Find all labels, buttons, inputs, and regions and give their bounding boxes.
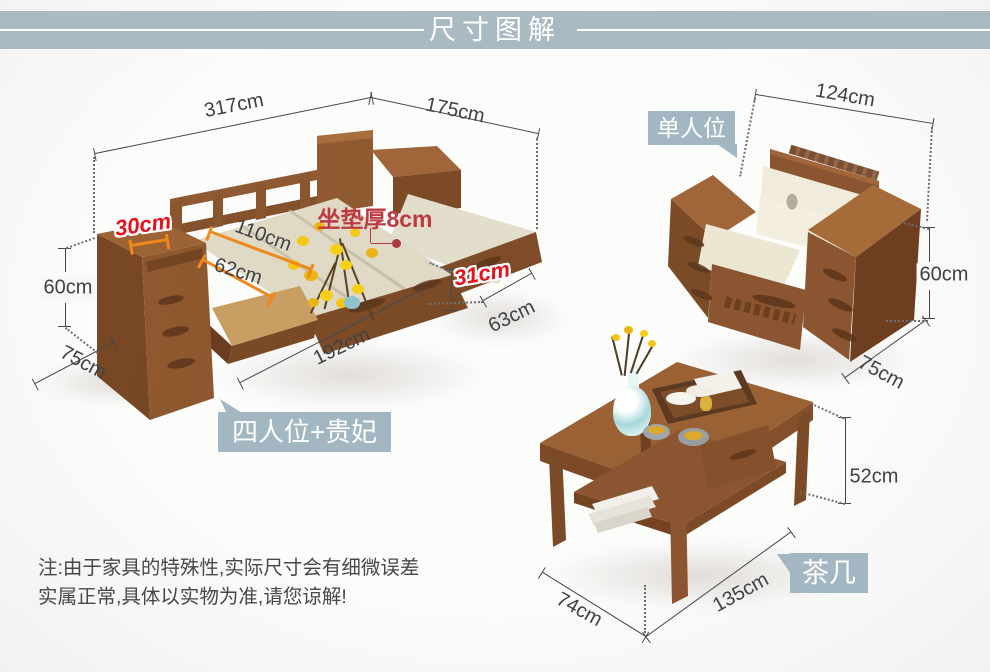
disclaimer-line-1: 注:由于家具的特殊性,实际尺寸会有细微误差 <box>38 554 419 583</box>
tray-cup <box>700 396 712 411</box>
dim-label-cushion-thickness: 坐垫厚8cm <box>317 200 432 234</box>
badge-single-seat: 单人位 <box>648 111 735 145</box>
leader-line <box>66 237 95 249</box>
callout-line <box>371 243 392 244</box>
badge-sofa-chaise-label: 四人位+贵妃 <box>232 417 377 447</box>
badge-tea-table-label: 茶几 <box>802 558 856 588</box>
sofa-vase <box>344 296 360 309</box>
badge-sofa-chaise: 四人位+贵妃 <box>218 412 391 452</box>
dim-label-armchair-height: 60cm <box>917 264 972 287</box>
badge-single-seat-label: 单人位 <box>657 115 726 141</box>
dim-label-sofa-chaise-length: 175cm <box>423 94 487 129</box>
dim-label-armchair-width: 124cm <box>813 79 876 112</box>
tea-bowl-inner <box>648 426 665 434</box>
disclaimer-note: 注:由于家具的特殊性,实际尺寸会有细微误差 实属正常,具体以实物为准,请您谅解! <box>38 554 419 612</box>
flower-blossom <box>308 298 319 307</box>
flower-blossom <box>320 290 333 301</box>
leader-line <box>811 403 845 420</box>
leader-line <box>536 138 538 229</box>
page-title: 尺寸图解 <box>429 11 561 49</box>
leader-line <box>739 98 756 177</box>
dim-label-table-height: 52cm <box>847 466 902 489</box>
dimension-line <box>845 418 846 503</box>
dimension-line <box>929 290 930 318</box>
cushion-callout-dot <box>392 239 401 248</box>
leader-line <box>886 320 928 322</box>
vase-flower <box>640 330 648 337</box>
vase-flower <box>612 334 620 341</box>
dimension-line <box>65 249 66 272</box>
vase-flower <box>648 340 656 347</box>
dimension-diagram: 317cm175cm30cm110cm62cm坐垫厚8cm60cm75cm192… <box>0 0 990 672</box>
tea-bowl-inner <box>684 431 703 440</box>
tray-plate <box>686 385 714 397</box>
disclaimer-line-2: 实属正常,具体以实物为准,请您谅解! <box>38 583 419 612</box>
badge-tea-table: 茶几 <box>790 553 868 593</box>
flower-blossom <box>330 244 343 255</box>
vase-flower <box>624 326 633 334</box>
dimension-line <box>929 228 930 262</box>
badge-tail <box>717 144 737 158</box>
flower-blossom <box>340 260 352 270</box>
header-rule-right <box>577 29 990 31</box>
flower-blossom <box>366 248 378 258</box>
header-rule-left <box>0 29 424 31</box>
dim-label-sofa-armrest-height: 60cm <box>41 277 96 300</box>
leader-line <box>93 157 95 233</box>
vase-branch <box>611 336 623 375</box>
dim-label-sofa-total-width: 317cm <box>202 89 265 123</box>
flower-blossom <box>297 236 309 246</box>
leader-line <box>799 491 845 505</box>
dimension-line <box>65 303 66 326</box>
flower-blossom <box>352 284 364 294</box>
leader-line <box>926 127 933 221</box>
leader-line <box>644 585 646 633</box>
section-header: 尺寸图解 <box>0 11 990 49</box>
